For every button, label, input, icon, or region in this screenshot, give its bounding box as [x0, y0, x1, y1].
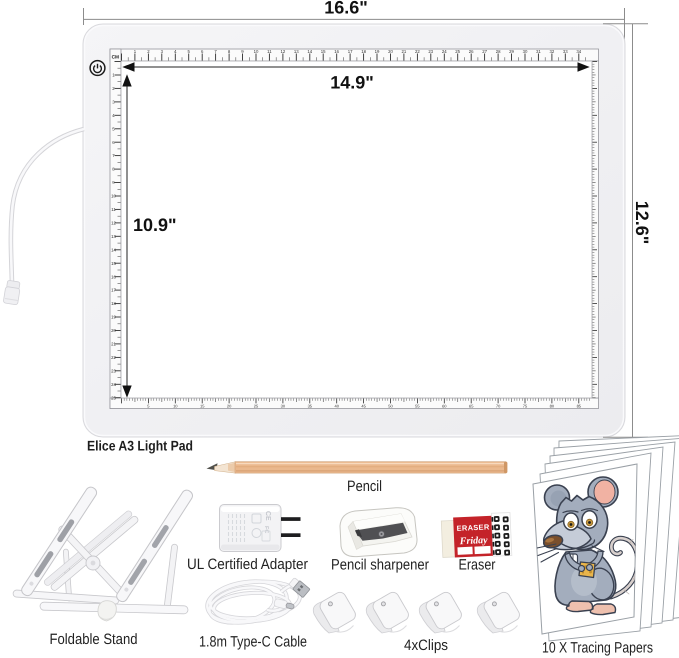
svg-text:31: 31 [536, 49, 541, 54]
svg-text:17: 17 [348, 49, 353, 54]
svg-text:10: 10 [111, 194, 116, 199]
svg-text:Foldable Stand: Foldable Stand [50, 631, 138, 648]
svg-text:17: 17 [111, 288, 116, 293]
svg-text:18: 18 [361, 49, 366, 54]
svg-text:60: 60 [442, 403, 447, 408]
svg-text:24: 24 [111, 382, 116, 387]
svg-text:33: 33 [563, 49, 568, 54]
svg-text:34: 34 [576, 49, 581, 54]
svg-text:16: 16 [111, 274, 116, 279]
svg-text:Elice A3 Light Pad: Elice A3 Light Pad [87, 438, 193, 454]
svg-text:20: 20 [388, 49, 393, 54]
svg-text:CM: CM [112, 55, 119, 61]
svg-text:85: 85 [577, 403, 582, 408]
svg-text:29: 29 [509, 49, 514, 54]
svg-text:1.8m Type-C Cable: 1.8m Type-C Cable [199, 634, 307, 651]
svg-text:30: 30 [523, 49, 528, 54]
svg-text:65: 65 [469, 403, 474, 408]
svg-text:Pencil: Pencil [347, 478, 382, 495]
svg-text:20: 20 [111, 328, 116, 333]
svg-text:20: 20 [227, 403, 232, 408]
svg-text:15: 15 [321, 49, 326, 54]
svg-text:10: 10 [173, 403, 178, 408]
svg-text:14: 14 [307, 49, 312, 54]
svg-text:25: 25 [254, 403, 259, 408]
svg-text:11: 11 [111, 207, 116, 212]
svg-text:13: 13 [294, 49, 299, 54]
svg-text:Friday: Friday [459, 535, 489, 547]
svg-text:18: 18 [111, 301, 116, 306]
svg-text:12.6": 12.6" [632, 201, 652, 245]
svg-text:22: 22 [111, 355, 116, 360]
svg-text:22: 22 [415, 49, 420, 54]
svg-text:50: 50 [388, 403, 393, 408]
svg-text:4xClips: 4xClips [404, 637, 448, 654]
svg-text:30: 30 [281, 403, 286, 408]
svg-text:ERASER: ERASER [456, 522, 490, 532]
svg-text:23: 23 [428, 49, 433, 54]
svg-text:80: 80 [550, 403, 555, 408]
svg-text:35: 35 [308, 403, 313, 408]
svg-text:55: 55 [415, 403, 420, 408]
svg-text:16: 16 [334, 49, 339, 54]
svg-text:19: 19 [111, 315, 116, 320]
svg-text:27: 27 [482, 49, 487, 54]
svg-text:11: 11 [267, 49, 272, 54]
svg-text:21: 21 [402, 49, 407, 54]
svg-text:32: 32 [550, 49, 555, 54]
svg-text:19: 19 [375, 49, 380, 54]
svg-text:14: 14 [111, 247, 116, 252]
svg-text:Eraser: Eraser [459, 557, 496, 574]
svg-text:UL Certified Adapter: UL Certified Adapter [187, 556, 308, 573]
svg-text:25: 25 [111, 395, 116, 400]
svg-text:12: 12 [111, 221, 116, 226]
svg-text:Pencil sharpener: Pencil sharpener [331, 557, 429, 574]
svg-text:14.9": 14.9" [330, 73, 374, 93]
svg-text:16.6": 16.6" [324, 0, 368, 18]
svg-text:75: 75 [523, 403, 528, 408]
svg-text:40: 40 [334, 403, 339, 408]
svg-text:10: 10 [254, 49, 259, 54]
svg-text:25: 25 [455, 49, 460, 54]
svg-text:21: 21 [111, 342, 116, 347]
svg-text:FC: FC [263, 526, 269, 533]
svg-text:28: 28 [496, 49, 501, 54]
svg-text:10 X Tracing Papers: 10 X Tracing Papers [542, 640, 653, 657]
svg-text:70: 70 [496, 403, 501, 408]
svg-text:CE: CE [264, 511, 271, 521]
svg-text:13: 13 [111, 234, 116, 239]
svg-text:15: 15 [200, 403, 205, 408]
svg-text:23: 23 [111, 368, 116, 373]
svg-text:45: 45 [361, 403, 366, 408]
svg-text:26: 26 [469, 49, 474, 54]
svg-text:15: 15 [111, 261, 116, 266]
svg-text:24: 24 [442, 49, 447, 54]
svg-text:10.9": 10.9" [133, 215, 177, 235]
svg-text:12: 12 [281, 49, 286, 54]
